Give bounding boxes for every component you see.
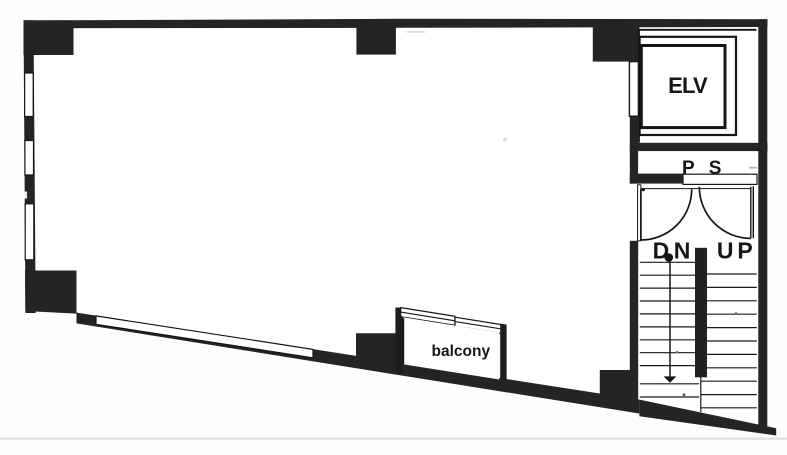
svg-text:U: U	[717, 238, 734, 264]
svg-text:balcony: balcony	[432, 343, 491, 360]
svg-text:P: P	[737, 238, 752, 264]
svg-text:N: N	[674, 238, 691, 264]
svg-text:ELV: ELV	[668, 73, 708, 98]
